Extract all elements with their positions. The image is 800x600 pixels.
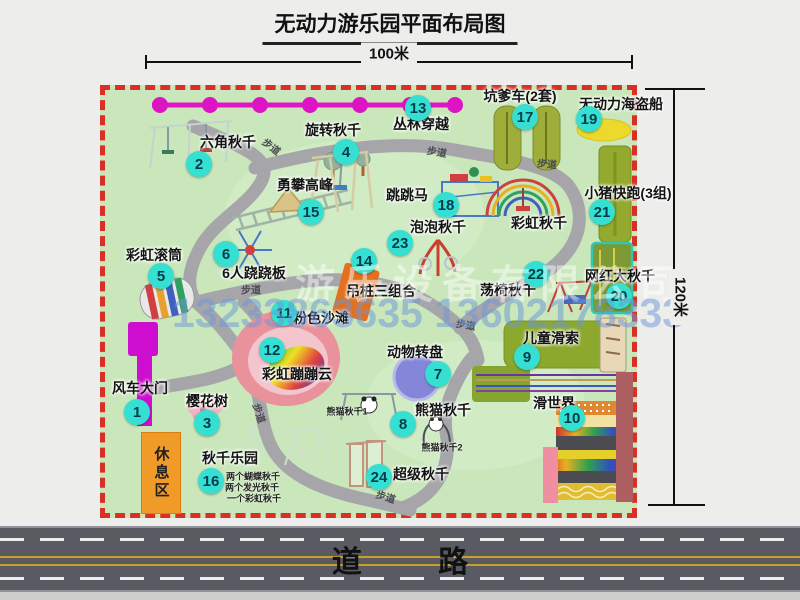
rest-area-label: 休息区	[151, 446, 172, 500]
road-label: 道 路	[298, 537, 502, 581]
dimension-tick	[645, 88, 705, 90]
rest-area-block: 休息区	[141, 432, 181, 514]
height-dimension-label: 120米	[671, 269, 692, 325]
dimension-tick	[631, 55, 633, 69]
grass-patch	[365, 340, 585, 470]
park-plan-page: 休息区 风车大门1六角秋千2樱花树3旋转秋千4彩虹滚筒56人跷跷板6动物转盘7熊…	[0, 0, 800, 600]
width-dimension-label: 100米	[361, 43, 417, 64]
dimension-tick	[145, 55, 147, 69]
grass-patch	[225, 140, 485, 290]
road: 道 路	[0, 526, 800, 592]
page-title: 无动力游乐园平面布局图	[263, 8, 518, 45]
dimension-tick	[648, 504, 705, 506]
